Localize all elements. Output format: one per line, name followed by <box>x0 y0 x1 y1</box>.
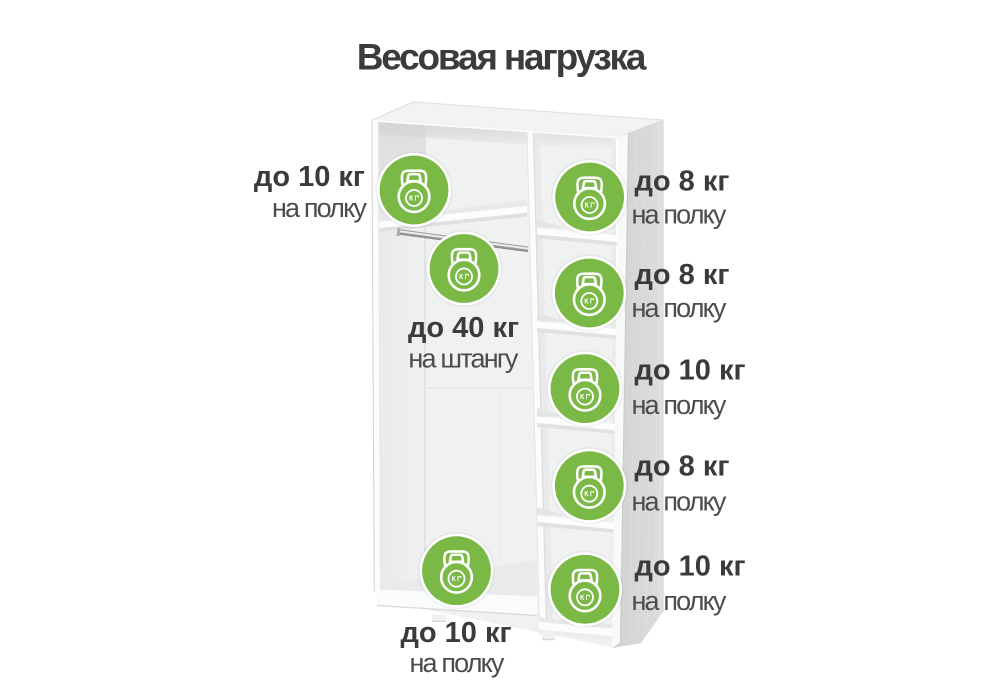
svg-text:до 8 кг: до 8 кг <box>635 451 730 483</box>
svg-text:до 10 кг: до 10 кг <box>635 355 746 387</box>
svg-text:на полку: на полку <box>632 586 727 616</box>
svg-text:до 40 кг: до 40 кг <box>408 312 519 344</box>
svg-text:на полку: на полку <box>409 648 504 678</box>
svg-text:на полку: на полку <box>632 293 727 323</box>
svg-text:на штангу: на штангу <box>408 344 519 374</box>
svg-text:до 10 кг: до 10 кг <box>400 617 511 649</box>
svg-text:Весовая нагрузка: Весовая нагрузка <box>357 37 647 78</box>
svg-text:до 8 кг: до 8 кг <box>635 259 730 291</box>
svg-text:на полку: на полку <box>632 390 727 420</box>
svg-text:до 8 кг: до 8 кг <box>635 166 730 198</box>
svg-text:на полку: на полку <box>632 487 727 517</box>
svg-text:на полку: на полку <box>632 200 727 230</box>
svg-text:до 10 кг: до 10 кг <box>254 161 365 193</box>
svg-text:на полку: на полку <box>272 193 367 223</box>
svg-text:до 10 кг: до 10 кг <box>635 551 746 583</box>
